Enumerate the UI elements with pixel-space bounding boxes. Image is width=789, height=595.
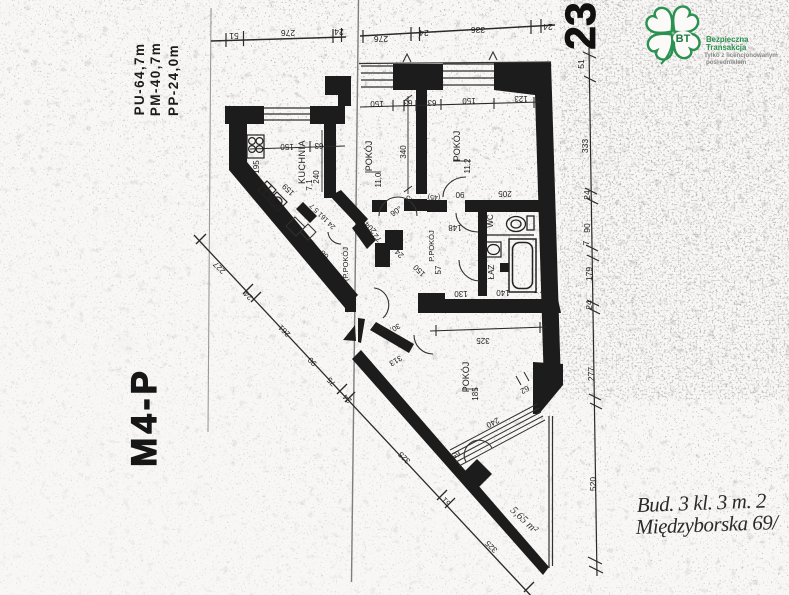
svg-text:148: 148: [448, 223, 462, 232]
svg-text:24: 24: [543, 22, 553, 32]
svg-text:51: 51: [229, 31, 239, 41]
svg-text:179: 179: [584, 267, 594, 281]
svg-text:PP-24,0m: PP-24,0m: [166, 44, 181, 116]
svg-text:520: 520: [588, 477, 598, 491]
svg-text:7,1: 7,1: [305, 179, 314, 191]
svg-text:333: 333: [580, 139, 590, 153]
svg-text:11,2: 11,2: [463, 158, 472, 174]
svg-text:276: 276: [374, 34, 388, 44]
svg-text:51: 51: [576, 59, 586, 69]
svg-text:Tylko z licencjonowanym: Tylko z licencjonowanym: [704, 52, 778, 59]
svg-text:ŁAZ: ŁAZ: [487, 265, 496, 280]
svg-text:PM-40,7m: PM-40,7m: [148, 42, 163, 116]
svg-text:123: 123: [514, 94, 528, 103]
svg-text:336: 336: [471, 25, 485, 35]
svg-text:27 7: 27 7: [534, 286, 548, 293]
svg-text:11,0: 11,0: [374, 172, 383, 188]
svg-text:23: 23: [557, 2, 605, 50]
svg-text:195: 195: [252, 160, 261, 174]
svg-text:24: 24: [419, 28, 429, 38]
svg-text:(P.POKÓJ: (P.POKÓJ: [341, 247, 350, 281]
svg-text:KUCHNIA: KUCHNIA: [297, 140, 307, 184]
svg-text:7: 7: [581, 240, 591, 245]
svg-text:(45): (45): [428, 193, 440, 200]
svg-text:24: 24: [334, 27, 344, 37]
svg-text:M4-P: M4-P: [125, 367, 164, 467]
svg-text:24: 24: [582, 190, 592, 200]
svg-text:P.POKÓJ: P.POKÓJ: [427, 230, 436, 262]
svg-text:BT: BT: [676, 33, 691, 45]
svg-text:WC: WC: [486, 214, 495, 228]
svg-text:pośrednikiem: pośrednikiem: [706, 59, 747, 66]
svg-text:277: 277: [586, 367, 596, 381]
svg-text:276: 276: [281, 28, 295, 38]
svg-text:140: 140: [496, 288, 510, 297]
svg-text:340: 340: [399, 145, 408, 159]
svg-text:POKÓJ: POKÓJ: [461, 362, 471, 393]
svg-text:150: 150: [370, 99, 384, 108]
svg-text:POKÓJ: POKÓJ: [364, 141, 374, 172]
svg-text:PU-64,7m: PU-64,7m: [132, 43, 147, 116]
svg-text:150: 150: [462, 96, 476, 105]
svg-text:Międzyborska 69/: Międzyborska 69/: [634, 510, 780, 539]
svg-text:POKÓJ: POKÓJ: [452, 131, 462, 162]
svg-text:150: 150: [280, 142, 294, 151]
svg-text:205: 205: [498, 189, 512, 198]
svg-text:63: 63: [427, 98, 436, 107]
svg-text:130: 130: [454, 289, 468, 298]
svg-text:57: 57: [434, 265, 443, 274]
svg-text:90: 90: [455, 190, 464, 199]
svg-text:24: 24: [584, 300, 594, 310]
svg-text:Transakcja: Transakcja: [706, 43, 747, 52]
svg-text:325: 325: [476, 336, 490, 345]
svg-text:90: 90: [582, 223, 592, 233]
